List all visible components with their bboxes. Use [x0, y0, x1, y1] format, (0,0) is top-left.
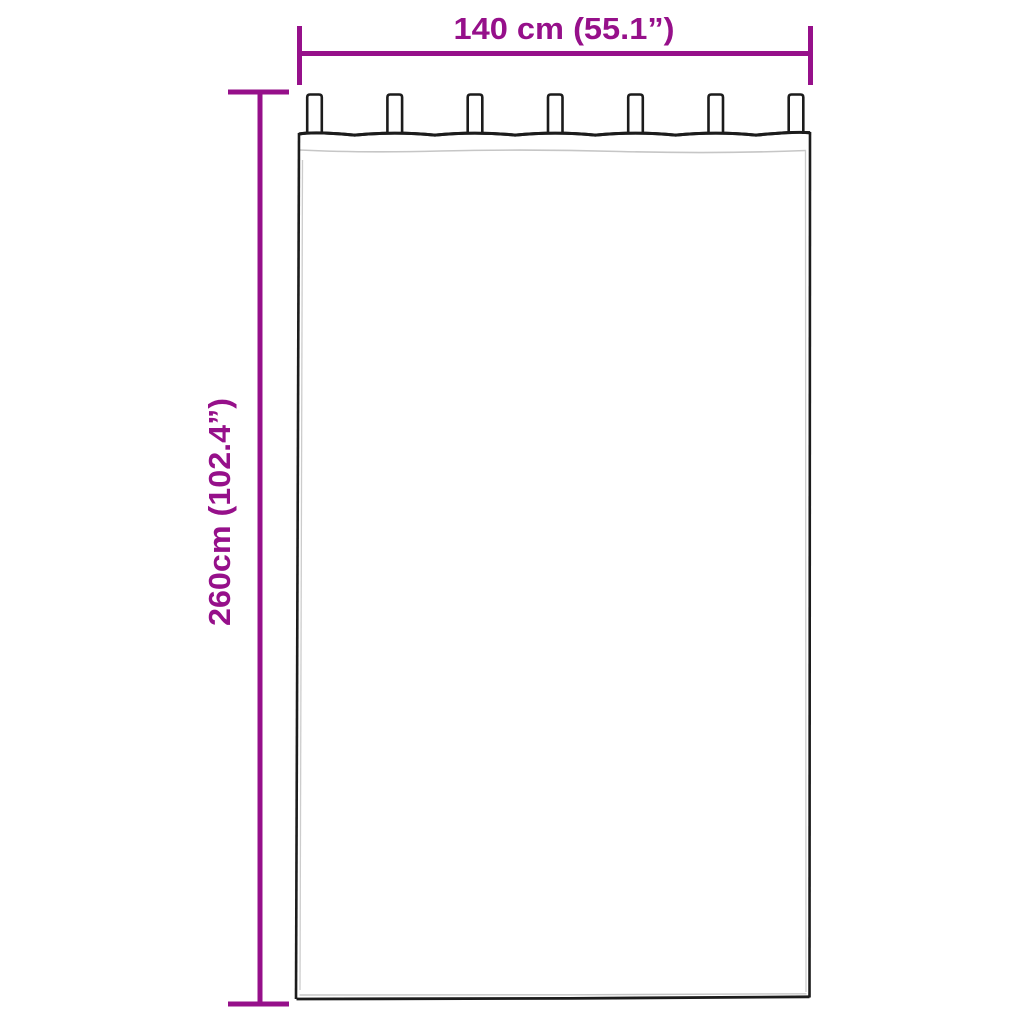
svg-text:140 cm (55.1”): 140 cm (55.1”)	[454, 11, 675, 46]
svg-text:260cm (102.4”): 260cm (102.4”)	[202, 398, 237, 626]
